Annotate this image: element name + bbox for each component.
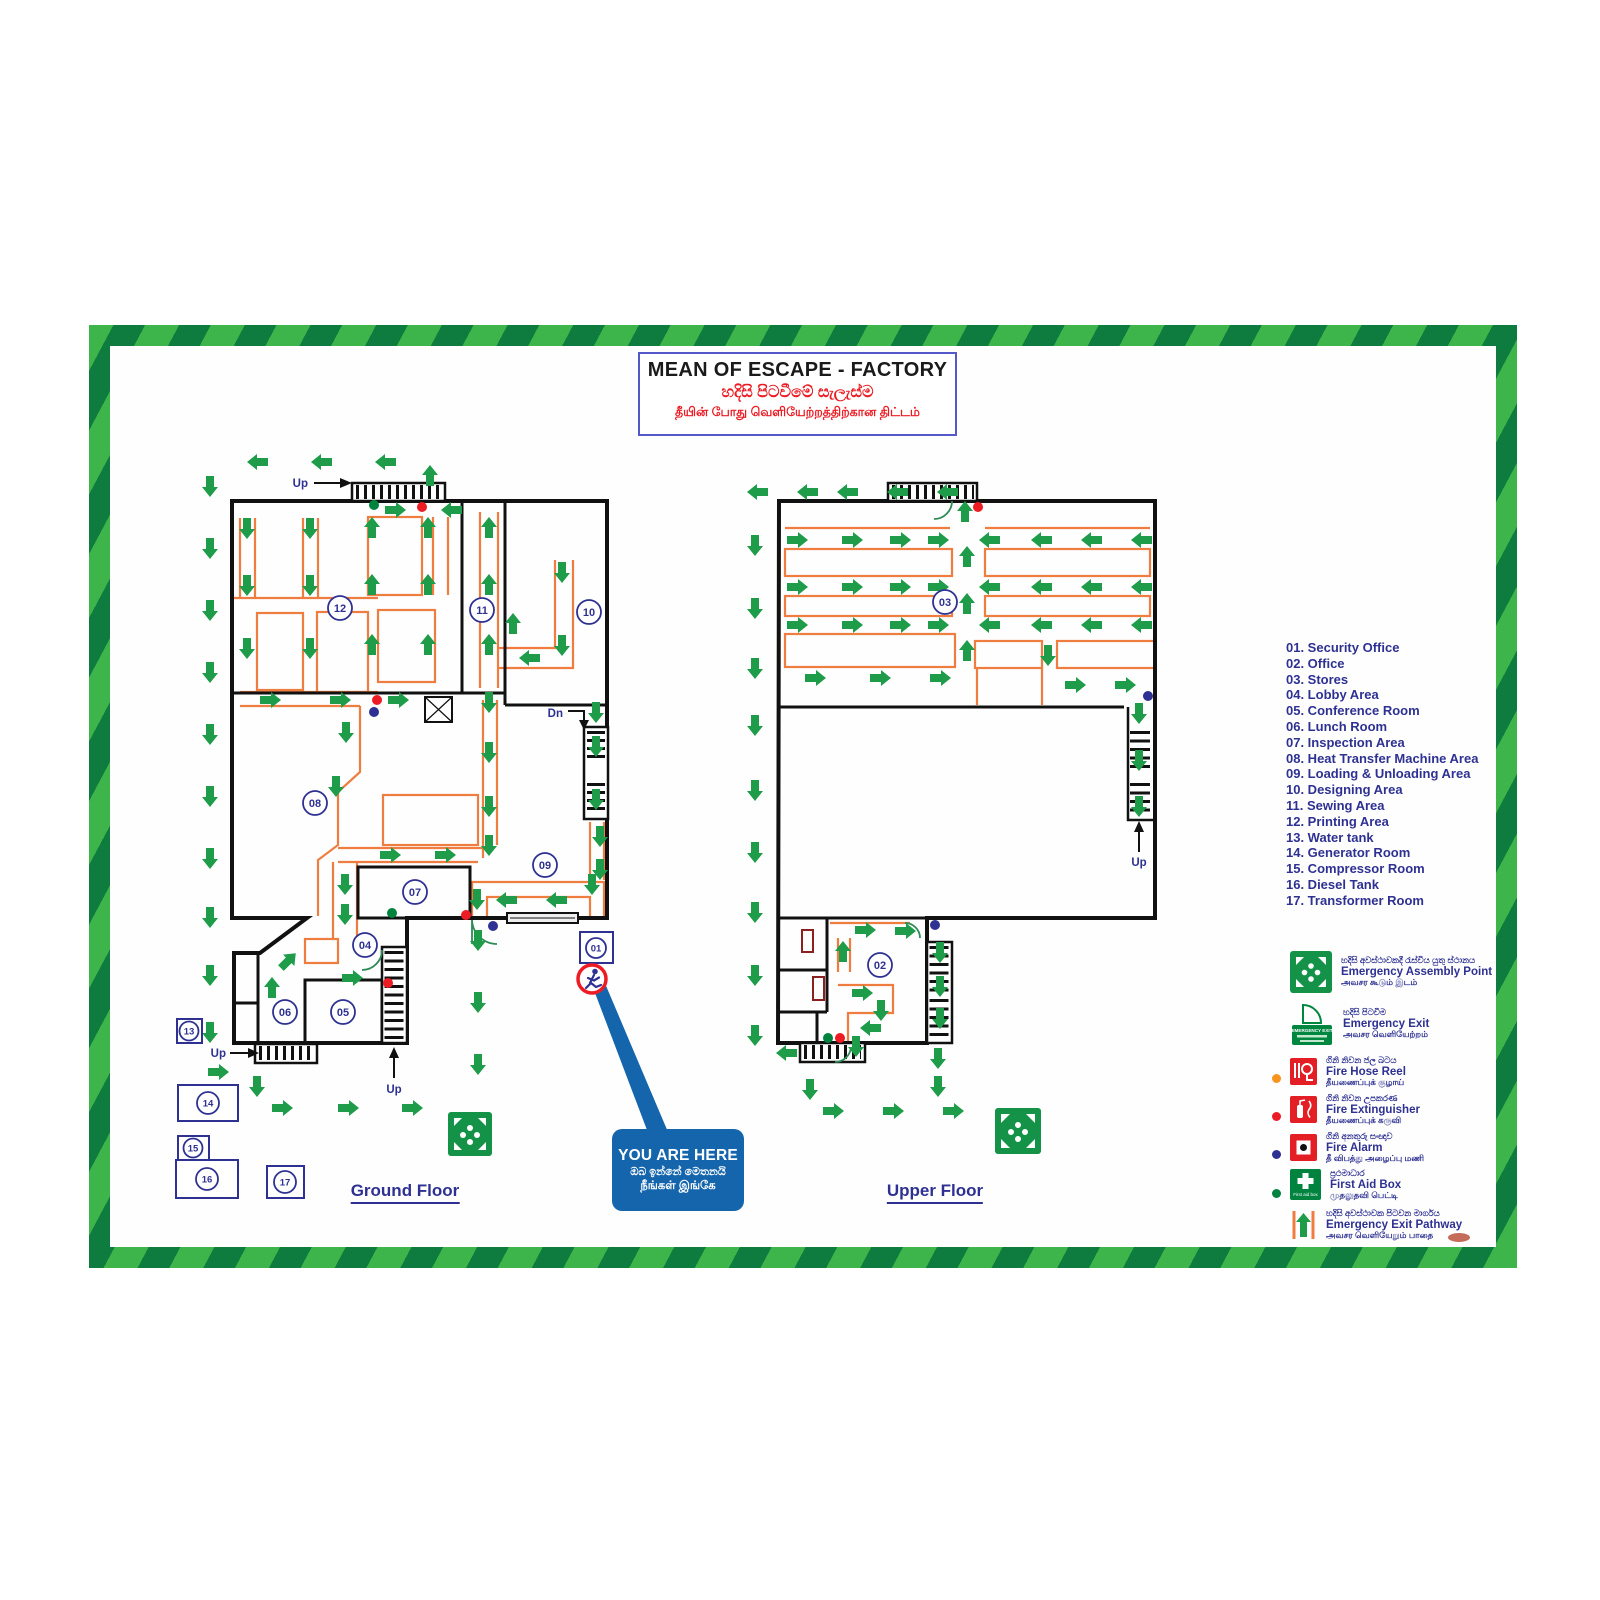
evacuation-plan-poster: Up Up Up Dn 12 11: [0, 0, 1600, 1600]
up-label: Up: [1131, 857, 1146, 869]
you-are-here-marker: [578, 965, 668, 1138]
up-label: Up: [293, 478, 308, 490]
room-legend-item: 14. Generator Room: [1286, 845, 1478, 861]
room-legend-item: 12. Printing Area: [1286, 814, 1478, 830]
first-aid-map-dot: [1272, 1189, 1281, 1198]
room-badge: 12: [334, 603, 346, 615]
assembly-point-icon: [448, 1112, 492, 1156]
you-are-here-tamil: நீங்கள் இங்கே: [612, 1180, 744, 1194]
room-legend-item: 13. Water tank: [1286, 830, 1478, 846]
upper-floor-stairs: [800, 483, 1140, 1062]
room-legend-item: 01. Security Office: [1286, 640, 1478, 656]
you-are-here-text: YOU ARE HERE: [612, 1147, 744, 1165]
room-badge: 05: [337, 1007, 349, 1019]
room-legend-item: 15. Compressor Room: [1286, 861, 1478, 877]
room-legend-list: 01. Security Office 02. Office 03. Store…: [1286, 640, 1478, 909]
legend-label-sinhala: හදිසි පිටවීම: [1343, 1008, 1429, 1018]
room-legend-item: 16. Diesel Tank: [1286, 877, 1478, 893]
room-badge: 17: [280, 1178, 291, 1189]
first-aid-icon-text: First aid box: [1293, 1192, 1318, 1197]
legend-label-tamil: தீயணைப்புக் கருவி: [1326, 1116, 1420, 1126]
room-legend-item: 03. Stores: [1286, 672, 1478, 688]
legend-row-exit-pathway: හදිසි අවස්ථාවක පිටවන මාර්ගය Emergency Ex…: [1268, 1209, 1462, 1241]
room-badge: 11: [476, 605, 488, 617]
room-badge: 13: [184, 1027, 195, 1038]
room-badge: 07: [409, 887, 421, 899]
room-legend-item: 06. Lunch Room: [1286, 719, 1478, 735]
legend-label-tamil: அவசர கூடும் இடம்: [1341, 978, 1492, 988]
ground-floor-label: Ground Floor: [351, 1181, 460, 1204]
down-label: Dn: [548, 708, 563, 720]
legend-row-fire-extinguisher: ගිනි නිවන උපකරණ Fire Extinguisher தீயணைப…: [1268, 1094, 1420, 1126]
legend-row-fire-hose-reel: ගිනි නිවන ජල බටය Fire Hose Reel தீயணைப்ப…: [1268, 1056, 1406, 1088]
exit-sign-text: EMERGENCY EXIT: [1291, 1028, 1332, 1033]
page-title-sinhala: හදිසි පිටවීමේ සැලැස්ම: [640, 384, 955, 402]
room-legend-item: 17. Transformer Room: [1286, 893, 1478, 909]
legend-label-sinhala: ගිනි නිවන උපකරණ: [1326, 1094, 1420, 1104]
fire-alarm-icon: [1290, 1134, 1317, 1161]
legend-label-tamil: முதலுதவி பெட்டி: [1330, 1191, 1401, 1201]
room-badge: 04: [359, 940, 372, 952]
exit-pathway-icon: [1290, 1209, 1317, 1241]
room-legend-item: 10. Designing Area: [1286, 782, 1478, 798]
legend-label-tamil: தீ விபத்து அழைப்பு மணி: [1326, 1154, 1424, 1164]
legend-row-fire-alarm: ගිනි අනතුරු සංඥාව Fire Alarm தீ விபத்து …: [1268, 1132, 1424, 1164]
hose-reel-map-dot: [1272, 1074, 1281, 1083]
loading-door: [507, 913, 578, 923]
room-badge: 08: [309, 798, 321, 810]
room-badge: 09: [539, 860, 551, 872]
legend-row-first-aid: First aid box ප්‍රථමාධාර First Aid Box ம…: [1268, 1169, 1401, 1201]
title-box: MEAN OF ESCAPE - FACTORY හදිසි පිටවීමේ ස…: [638, 352, 957, 436]
legend-label-sinhala: ගිනි අනතුරු සංඥාව: [1326, 1132, 1424, 1142]
ground-floor-room-badges: 12 11 10 08 07 09 04 05 06 01 13 14 15 1…: [180, 596, 607, 1193]
room-badge: 03: [939, 597, 951, 609]
assembly-point-icon: [1290, 951, 1332, 993]
page-title: MEAN OF ESCAPE - FACTORY: [640, 359, 955, 382]
room-legend-item: 08. Heat Transfer Machine Area: [1286, 751, 1478, 767]
room-badge: 06: [279, 1007, 291, 1019]
legend-label-sinhala: ප්‍රථමාධාර: [1330, 1169, 1401, 1179]
upper-floor-stair-labels: Up: [1131, 821, 1146, 869]
room-legend-item: 04. Lobby Area: [1286, 687, 1478, 703]
upper-floor-label: Upper Floor: [887, 1181, 983, 1204]
room-legend-item: 09. Loading & Unloading Area: [1286, 766, 1478, 782]
room-badge: 15: [188, 1144, 199, 1155]
legend-label-sinhala: හදිසි අවස්ථාවක පිටවන මාර්ගය: [1326, 1209, 1462, 1219]
you-are-here-sinhala: ඔබ ඉන්නේ මෙතනයි: [612, 1166, 744, 1179]
legend-label-tamil: தீயணைப்புக் குழாய்: [1326, 1078, 1406, 1088]
room-badge: 10: [583, 607, 595, 619]
legend-row-assembly-point: හදිසි අවස්ථාවකදී රැස්විය යුතු ස්ථානය Eme…: [1268, 951, 1492, 993]
assembly-point-icon: [995, 1108, 1041, 1154]
fire-alarm-map-dot: [1272, 1150, 1281, 1159]
legend-label-tamil: அவசர வெளியேற்றம்: [1343, 1030, 1429, 1040]
legend-label-sinhala: ගිනි නිවන ජල බටය: [1326, 1056, 1406, 1066]
up-label: Up: [386, 1084, 401, 1096]
room-legend-item: 05. Conference Room: [1286, 703, 1478, 719]
page-title-tamil: தீயின் போது வெளியேற்றத்திற்கான திட்டம்: [640, 405, 955, 421]
room-badge: 14: [203, 1099, 214, 1110]
upper-floor-plan: Up 03 02: [747, 483, 1155, 1154]
room-badge: 16: [202, 1175, 213, 1186]
symbols-legend: හදිසි අවස්ථාවකදී රැස්විය යුතු ස්ථානය Eme…: [1268, 946, 1496, 1248]
you-are-here-callout: YOU ARE HERE ඔබ ඉන්නේ මෙතනයි நீங்கள் இங்…: [612, 1129, 744, 1211]
fire-hose-reel-icon: [1290, 1058, 1317, 1085]
room-badge: 01: [591, 944, 602, 955]
extinguisher-map-dot: [1272, 1112, 1281, 1121]
room-badge: 02: [874, 960, 886, 972]
up-label: Up: [211, 1048, 226, 1060]
emergency-exit-icon: EMERGENCY EXIT: [1290, 1001, 1334, 1047]
signature-mark: [1448, 1233, 1470, 1242]
fire-extinguisher-icon: [1290, 1096, 1317, 1123]
legend-label-sinhala: හදිසි අවස්ථාවකදී රැස්විය යුතු ස්ථානය: [1341, 956, 1492, 966]
room-legend-item: 11. Sewing Area: [1286, 798, 1478, 814]
ground-floor-plan: Up Up Up Dn 12 11: [176, 454, 613, 1198]
room-legend-item: 07. Inspection Area: [1286, 735, 1478, 751]
room-legend-item: 02. Office: [1286, 656, 1478, 672]
first-aid-box-icon: First aid box: [1290, 1169, 1321, 1200]
legend-label-tamil: அவசர வெளியேறும் பாதை: [1326, 1231, 1462, 1241]
legend-row-emergency-exit: EMERGENCY EXIT හදිසි පිටවීම Emergency Ex…: [1268, 1001, 1429, 1047]
upper-floor-walls: [778, 501, 1155, 1043]
